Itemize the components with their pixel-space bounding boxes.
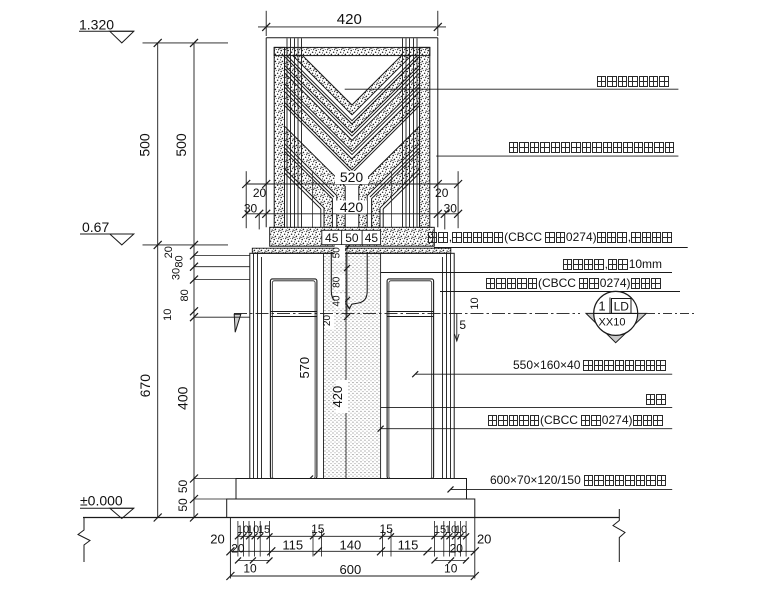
svg-text:15: 15	[258, 524, 270, 536]
svg-text:40: 40	[332, 295, 343, 307]
svg-text:400: 400	[175, 386, 191, 410]
svg-text:10: 10	[444, 562, 458, 576]
svg-text:10: 10	[469, 297, 481, 309]
svg-text:570: 570	[297, 357, 312, 379]
svg-text:45: 45	[325, 231, 339, 245]
svg-text:115: 115	[282, 538, 303, 553]
svg-text:10: 10	[243, 562, 257, 576]
svg-text:140: 140	[340, 538, 362, 553]
svg-text:20: 20	[450, 542, 464, 556]
svg-text:670: 670	[137, 374, 153, 398]
svg-text:500: 500	[137, 133, 153, 157]
svg-text:420: 420	[340, 199, 364, 215]
svg-text:15: 15	[311, 522, 325, 536]
svg-text:20: 20	[210, 532, 224, 547]
svg-text:520: 520	[340, 169, 364, 185]
svg-text:80: 80	[174, 255, 186, 267]
svg-text:20: 20	[435, 186, 449, 200]
svg-text:20: 20	[477, 532, 491, 547]
svg-text:45: 45	[365, 231, 379, 245]
svg-text:20: 20	[231, 542, 245, 556]
svg-text:20: 20	[322, 315, 333, 327]
svg-text:600: 600	[340, 562, 362, 577]
svg-text:50: 50	[176, 480, 190, 494]
svg-text:420: 420	[337, 11, 362, 28]
svg-text:500: 500	[173, 133, 189, 157]
svg-text:30: 30	[244, 201, 258, 215]
svg-text:1: 1	[598, 299, 605, 314]
svg-text:±0.000: ±0.000	[80, 493, 123, 509]
svg-text:15: 15	[380, 522, 394, 536]
svg-text:10: 10	[455, 524, 467, 536]
svg-text:420: 420	[330, 386, 345, 408]
svg-text:50: 50	[345, 231, 359, 245]
svg-text:30: 30	[444, 201, 458, 215]
svg-text:50: 50	[332, 247, 343, 259]
svg-text:50: 50	[176, 498, 190, 512]
svg-text:LD: LD	[614, 300, 630, 314]
svg-text:10: 10	[162, 309, 174, 321]
svg-text:80: 80	[179, 289, 191, 301]
svg-text:5: 5	[459, 318, 466, 332]
svg-text:30: 30	[171, 268, 183, 280]
svg-text:80: 80	[332, 276, 343, 288]
svg-text:XX10: XX10	[599, 317, 626, 329]
svg-text:20: 20	[253, 186, 267, 200]
svg-text:1.320: 1.320	[79, 17, 114, 33]
svg-text:115: 115	[398, 538, 419, 553]
svg-text:0.67: 0.67	[82, 219, 109, 235]
